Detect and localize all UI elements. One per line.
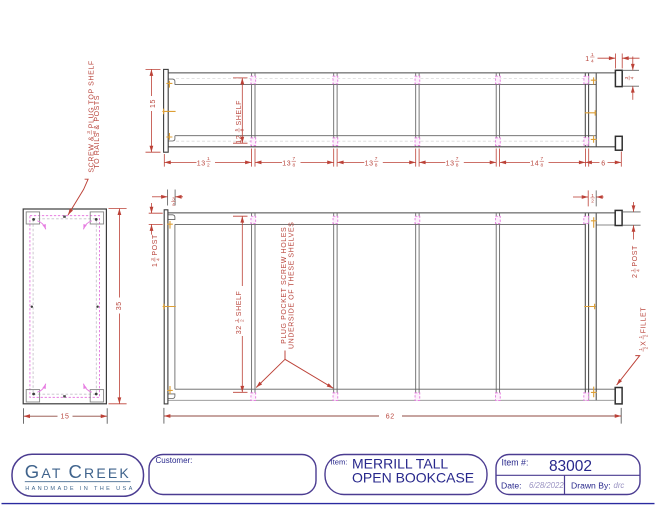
svg-text:32: 32 bbox=[236, 325, 243, 334]
svg-text:8: 8 bbox=[292, 163, 295, 169]
svg-text:12: 12 bbox=[236, 135, 243, 144]
svg-text:6/28/2022: 6/28/2022 bbox=[529, 481, 564, 490]
svg-text:15: 15 bbox=[61, 414, 70, 421]
svg-text:Item #:: Item #: bbox=[502, 458, 529, 468]
svg-text:8: 8 bbox=[540, 163, 543, 169]
svg-text:83002: 83002 bbox=[549, 458, 592, 475]
svg-text:SHELF: SHELF bbox=[236, 291, 243, 317]
svg-text:14: 14 bbox=[530, 160, 539, 167]
svg-text:2: 2 bbox=[644, 346, 650, 349]
svg-text:1: 1 bbox=[585, 56, 590, 63]
svg-text:4: 4 bbox=[591, 58, 594, 64]
svg-text:TO RAILS & POSTS: TO RAILS & POSTS bbox=[94, 95, 101, 169]
svg-text:4: 4 bbox=[636, 269, 642, 272]
svg-text:1: 1 bbox=[152, 263, 159, 268]
svg-text:2: 2 bbox=[644, 334, 650, 337]
svg-text:POST: POST bbox=[152, 234, 159, 256]
svg-text:GAT CREEK: GAT CREEK bbox=[25, 461, 131, 482]
svg-text:OPEN BOOKCASE: OPEN BOOKCASE bbox=[352, 470, 474, 486]
svg-text:2: 2 bbox=[632, 274, 639, 279]
svg-text:6: 6 bbox=[601, 160, 606, 167]
svg-text:drc: drc bbox=[614, 481, 625, 490]
svg-text:4: 4 bbox=[172, 202, 175, 208]
svg-text:Item:: Item: bbox=[331, 458, 348, 467]
svg-text:UNDERSIDE OF THESE SHELVES: UNDERSIDE OF THESE SHELVES bbox=[289, 222, 296, 349]
svg-text:13: 13 bbox=[197, 160, 206, 167]
svg-text:SHELF: SHELF bbox=[236, 100, 243, 126]
svg-text:POST: POST bbox=[632, 245, 639, 267]
svg-text:2: 2 bbox=[591, 199, 594, 205]
svg-text:4: 4 bbox=[630, 76, 636, 79]
svg-text:15: 15 bbox=[150, 99, 157, 108]
svg-text:PLUG POCKET SCREW HOLES: PLUG POCKET SCREW HOLES bbox=[281, 227, 288, 344]
svg-text:35: 35 bbox=[116, 301, 123, 310]
svg-text:2: 2 bbox=[239, 319, 245, 322]
svg-text:Date:: Date: bbox=[501, 481, 522, 491]
svg-text:X: X bbox=[640, 341, 647, 346]
svg-text:8: 8 bbox=[240, 128, 246, 131]
svg-text:Customer:: Customer: bbox=[156, 456, 193, 465]
svg-text:2: 2 bbox=[207, 163, 210, 169]
svg-text:13: 13 bbox=[282, 160, 291, 167]
svg-text:62: 62 bbox=[386, 414, 395, 421]
svg-text:HANDMADE IN THE USA: HANDMADE IN THE USA bbox=[25, 486, 135, 492]
svg-text:4: 4 bbox=[156, 258, 162, 261]
svg-text:FILLET: FILLET bbox=[640, 307, 647, 334]
svg-text:Drawn By:: Drawn By: bbox=[571, 481, 611, 491]
